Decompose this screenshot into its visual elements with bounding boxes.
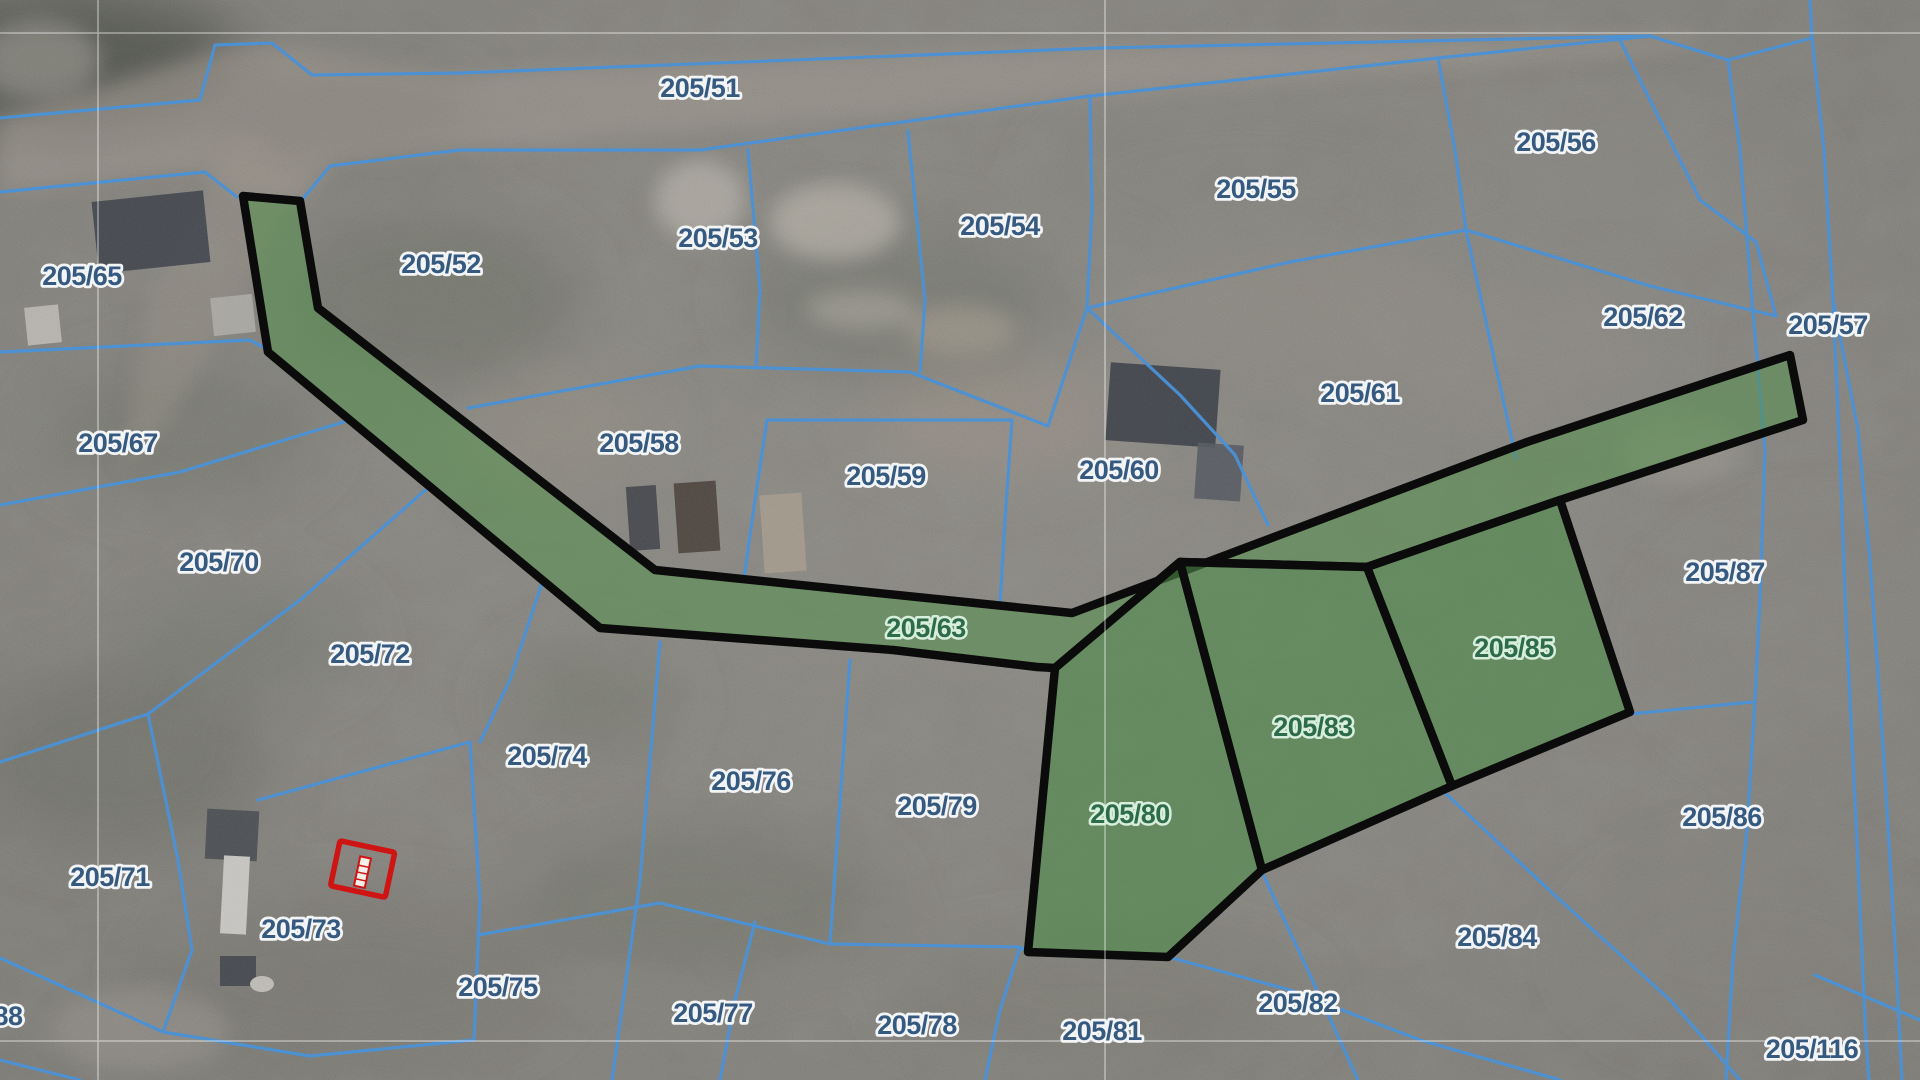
parcel-label-205-59: 205/59	[846, 461, 926, 491]
parcel-label-205-62: 205/62	[1603, 302, 1683, 332]
parcel-label-205-75: 205/75	[458, 972, 538, 1002]
parcel-label-205-57: 205/57	[1788, 310, 1868, 340]
parcel-label-205-58: 205/58	[599, 428, 679, 458]
parcel-label-205-116: 205/116	[1766, 1034, 1859, 1064]
parcel-label-205-63: 205/63	[886, 613, 966, 643]
parcel-label-205-54: 205/54	[960, 211, 1040, 241]
parcel-label-205-53: 205/53	[678, 223, 758, 253]
parcel-label-205-83: 205/83	[1273, 712, 1353, 742]
parcel-label-205-60: 205/60	[1079, 455, 1159, 485]
parcel-label-205-67: 205/67	[78, 428, 158, 458]
parcel-label-205-71: 205/71	[70, 862, 150, 892]
cadastral-map-svg[interactable]: 205/51205/65205/52205/53205/54205/55205/…	[0, 0, 1920, 1080]
parcel-label-205-82: 205/82	[1258, 988, 1338, 1018]
parcel-label-88: 88	[0, 1001, 23, 1031]
parcel-label-205-86: 205/86	[1682, 802, 1762, 832]
parcel-label-205-85: 205/85	[1474, 633, 1554, 663]
parcel-label-205-61: 205/61	[1320, 378, 1400, 408]
parcel-label-205-76: 205/76	[711, 766, 791, 796]
parcel-label-205-72: 205/72	[330, 639, 410, 669]
parcel-label-205-79: 205/79	[897, 791, 977, 821]
parcel-label-205-81: 205/81	[1062, 1016, 1142, 1046]
parcel-label-205-70: 205/70	[179, 547, 259, 577]
parcel-label-205-77: 205/77	[673, 998, 753, 1028]
parcel-label-205-87: 205/87	[1685, 557, 1765, 587]
map-viewport[interactable]: 205/51205/65205/52205/53205/54205/55205/…	[0, 0, 1920, 1080]
parcel-label-205-74: 205/74	[507, 741, 587, 771]
parcel-label-205-56: 205/56	[1516, 127, 1596, 157]
parcel-label-205-52: 205/52	[401, 249, 481, 279]
parcel-label-205-55: 205/55	[1216, 174, 1296, 204]
parcel-label-205-51: 205/51	[660, 73, 740, 103]
parcel-label-205-80: 205/80	[1090, 799, 1170, 829]
parcel-label-205-84: 205/84	[1457, 922, 1537, 952]
parcel-label-205-65: 205/65	[42, 261, 122, 291]
parcel-label-205-73: 205/73	[261, 914, 341, 944]
parcel-label-205-78: 205/78	[877, 1010, 957, 1040]
